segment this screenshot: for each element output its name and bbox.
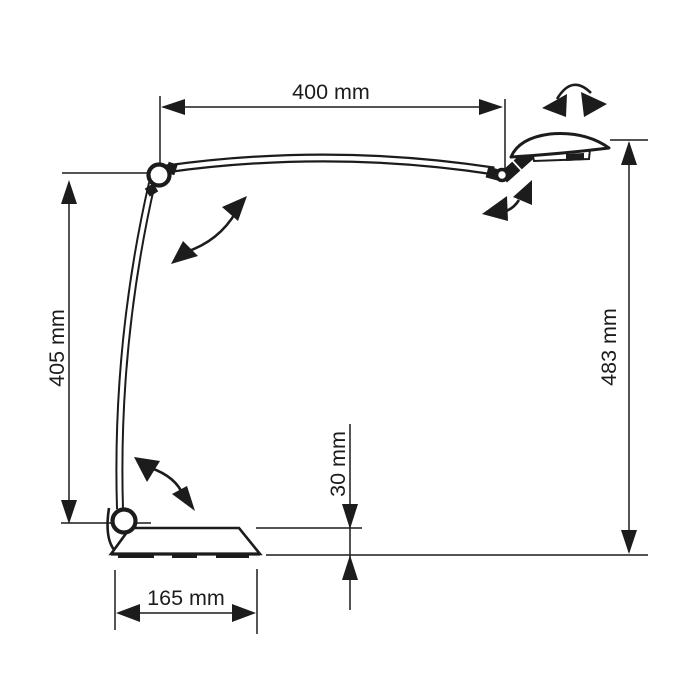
lamp-dimension-diagram: 400 mm 405 mm 483 mm 30 mm 165 mm (0, 0, 700, 700)
arrowhead-left (116, 604, 140, 622)
dimension-overall-height: 483 mm (597, 140, 648, 554)
head-shade (511, 134, 609, 157)
lamp-upper-arm (166, 158, 494, 171)
arrowhead-up (61, 180, 77, 204)
dimension-label-400mm: 400 mm (292, 80, 370, 104)
arrowhead-right (232, 604, 256, 622)
base-pivot-arrow (134, 457, 195, 511)
arrowhead-up (342, 555, 358, 580)
head-tilt-arrow (482, 180, 532, 221)
arrowhead-right (479, 99, 503, 115)
base-foot (118, 554, 154, 558)
arrowhead-up (621, 141, 637, 165)
dimension-base-depth: 165 mm (115, 569, 257, 634)
base-joint (113, 510, 136, 533)
base-foot (216, 554, 249, 558)
head-diffuser-tab (566, 153, 584, 161)
elbow-joint (149, 165, 177, 195)
arrowhead-left (161, 99, 185, 115)
dimension-lower-arm-height: 405 mm (45, 173, 151, 524)
dimension-label-165mm: 165 mm (147, 586, 225, 610)
base-foot (172, 554, 197, 558)
head-joint (497, 170, 508, 181)
arrowhead-down (342, 504, 358, 529)
diagram-svg: 400 mm 405 mm 483 mm 30 mm 165 mm (0, 0, 700, 700)
dimension-label-30mm: 30 mm (326, 431, 350, 497)
head-swivel-arrow (542, 85, 607, 117)
arrowhead-down (61, 500, 77, 524)
arrowhead-down (621, 530, 637, 554)
dimension-label-405mm: 405 mm (45, 309, 69, 387)
dimension-label-483mm: 483 mm (597, 308, 621, 386)
dimension-base-clearance: 30 mm (256, 424, 362, 610)
elbow-pivot-arrow (171, 196, 247, 264)
